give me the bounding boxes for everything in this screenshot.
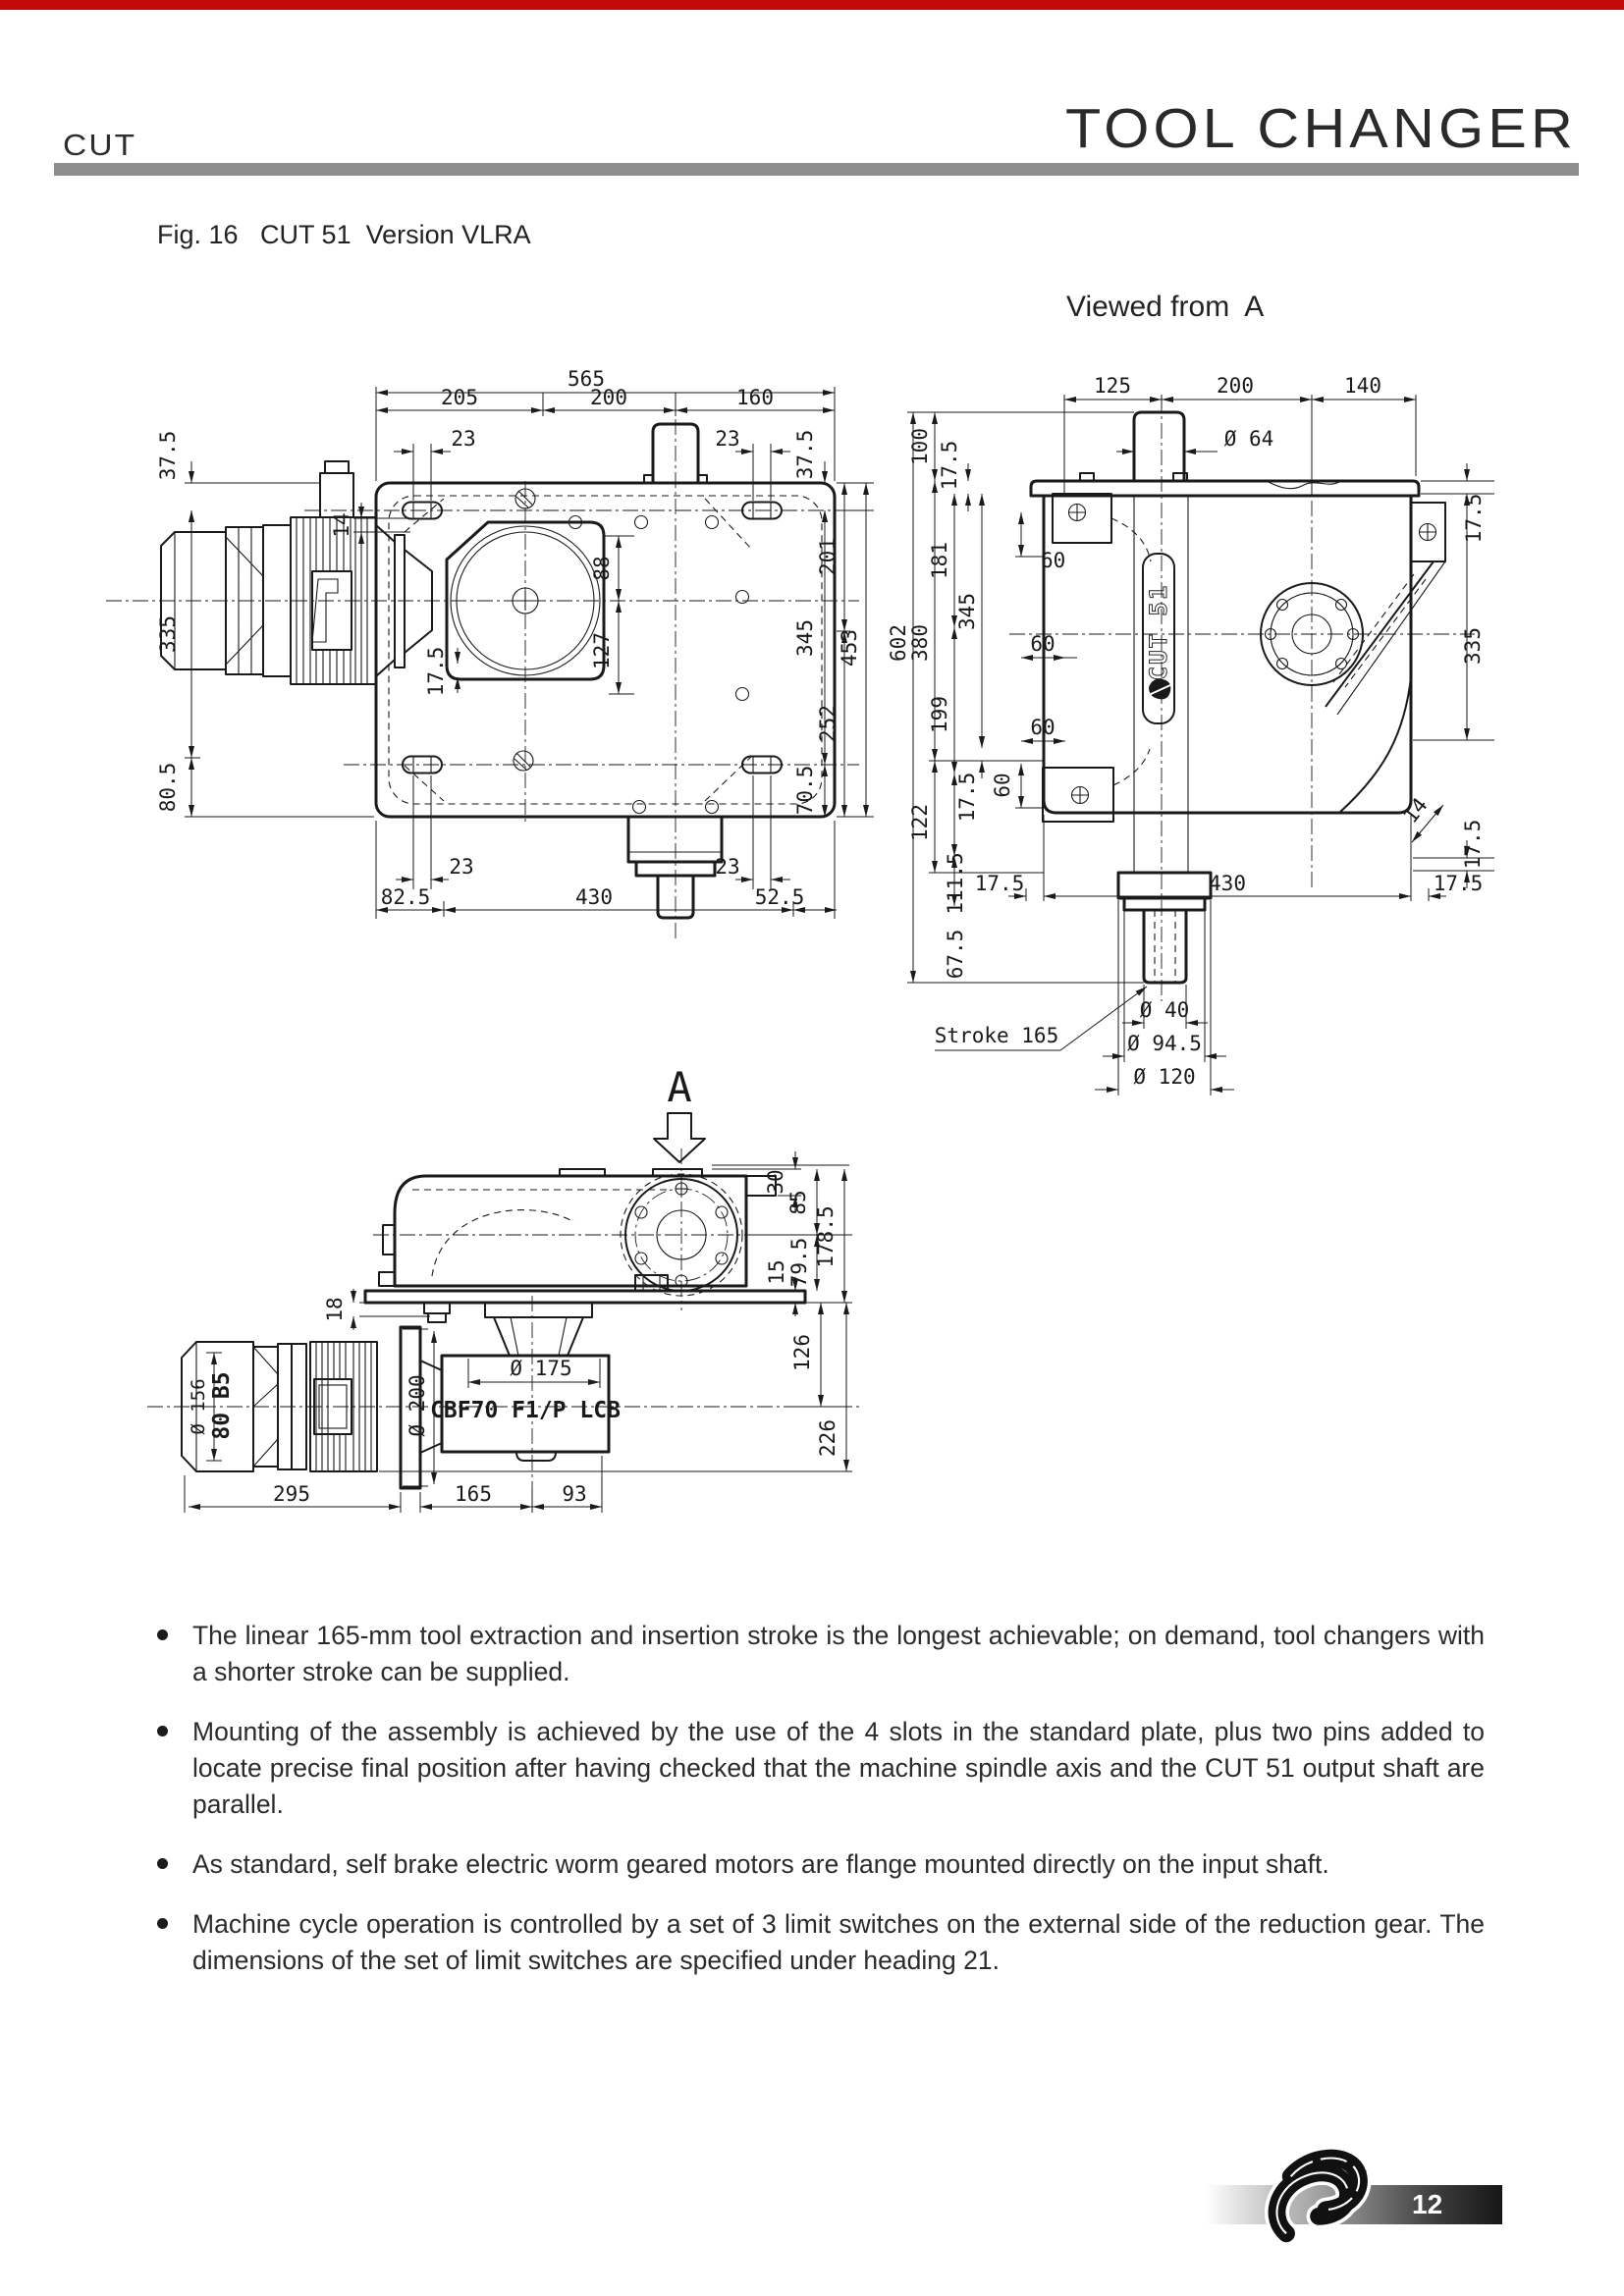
dim-label: 17.5	[1434, 872, 1484, 895]
side-view-drawing: A	[118, 1050, 943, 1600]
top-view-drawing: 565 205 200 160 23 23 37.5 335 80.5 14	[98, 353, 884, 982]
dim-label: 345	[793, 619, 817, 657]
dim-label: 430	[575, 885, 613, 909]
dim-label: 201	[816, 538, 839, 575]
bullet-text: The linear 165-mm tool extraction and in…	[192, 1618, 1485, 1690]
dim-label: 205	[441, 386, 478, 409]
dim-label: 18	[323, 1297, 347, 1321]
dim-label: 17.5	[1461, 820, 1485, 870]
dim-label: 200	[1217, 374, 1254, 398]
dim-label: 60	[1041, 549, 1065, 572]
dim-label: 165	[455, 1482, 492, 1506]
dim-label: 23	[451, 427, 475, 451]
dim-label: 93	[562, 1482, 586, 1506]
dim-label: 126	[790, 1334, 814, 1371]
dim-label: 14	[1398, 793, 1432, 828]
top-view-centerlines	[106, 393, 859, 942]
dim-label: Ø 94.5	[1127, 1032, 1202, 1055]
bullet-text: Mounting of the assembly is achieved by …	[192, 1714, 1485, 1823]
bullet-icon	[157, 1714, 192, 1823]
dim-label: Ø 156	[188, 1378, 209, 1434]
view-letter: A	[667, 1063, 691, 1111]
dim-label: 295	[273, 1482, 310, 1506]
bullet-text: Machine cycle operation is controlled by…	[192, 1906, 1485, 1979]
bullet-icon	[157, 1846, 192, 1883]
dim-label: 200	[590, 386, 627, 409]
dim-label: 60	[1030, 632, 1055, 656]
dim-label: Ø 175	[510, 1357, 571, 1380]
dim-label: 88	[590, 556, 614, 580]
dim-label: 127	[590, 632, 614, 669]
brand-knot-logo	[1265, 2146, 1378, 2256]
top-view-motor	[161, 461, 432, 684]
bullet-icon	[157, 1618, 192, 1690]
dim-label: 17.5	[975, 872, 1025, 895]
header-rule	[54, 163, 1579, 176]
dim-label: 23	[449, 855, 473, 879]
dim-label: 178.5	[814, 1205, 838, 1267]
page-number: 12	[1412, 2189, 1442, 2220]
dim-label: 23	[715, 855, 739, 879]
motor-model-label: CBF70 F1/P LCB	[430, 1398, 621, 1423]
dim-label: 602	[887, 624, 910, 662]
view-direction-marker: A	[654, 1063, 705, 1162]
dim-label: 67.5	[944, 930, 967, 980]
dim-label: 335	[1461, 627, 1485, 665]
dim-label: 37.5	[156, 431, 180, 481]
dim-label: Ø 200	[406, 1374, 429, 1436]
figure-caption: Fig. 16 CUT 51 Version VLRA	[157, 220, 531, 250]
dim-label: Ø 64	[1224, 427, 1274, 451]
document-page: CUT TOOL CHANGER Fig. 16 CUT 51 Version …	[0, 0, 1624, 2296]
dim-label: 199	[928, 696, 951, 733]
list-item: The linear 165-mm tool extraction and in…	[157, 1618, 1485, 1690]
front-view-centerlines	[1009, 397, 1475, 1001]
dim-label: 60	[1030, 716, 1055, 739]
dim-label: 14	[330, 512, 353, 537]
arrow-down-icon	[654, 1113, 705, 1162]
list-item: Mounting of the assembly is achieved by …	[157, 1714, 1485, 1823]
dim-label: 453	[838, 629, 861, 667]
motor-size-label: 80 B5	[209, 1371, 235, 1439]
dim-label: 23	[715, 427, 739, 451]
bullet-text: As standard, self brake electric worm ge…	[192, 1846, 1329, 1883]
dim-label: 252	[816, 705, 839, 742]
dim-label: 30	[764, 1169, 787, 1194]
dim-label: 160	[736, 386, 774, 409]
front-view-drawing: CUT 51 125 200 140 Ø 64 100 17.5 380 602	[884, 353, 1571, 1109]
side-view-outline	[182, 1169, 805, 1488]
dim-label: 125	[1094, 374, 1131, 398]
page-title: TOOL CHANGER	[1065, 96, 1577, 161]
dim-label: 122	[908, 804, 932, 841]
dim-label: Ø 40	[1140, 998, 1190, 1022]
stroke-note: Stroke 165	[935, 1024, 1058, 1047]
dim-label: 345	[955, 593, 979, 630]
dim-label: 70.5	[793, 766, 817, 816]
dim-label: 60	[991, 773, 1014, 797]
dim-label: 17.5	[955, 773, 979, 823]
front-view-outline: CUT 51	[1031, 412, 1445, 983]
dim-label: 17.5	[938, 441, 961, 491]
dim-label: 79.5	[787, 1238, 811, 1288]
dim-label: Ø 120	[1133, 1065, 1195, 1089]
view-from-label: Viewed from A	[1066, 291, 1264, 324]
dim-label: 17.5	[1462, 494, 1486, 544]
notes-list: The linear 165-mm tool extraction and in…	[157, 1618, 1485, 2002]
dim-label: 380	[908, 624, 932, 662]
top-accent-bar	[0, 0, 1624, 10]
dim-label: 82.5	[381, 885, 431, 909]
dim-label: 140	[1344, 374, 1381, 398]
dim-label: 15	[765, 1259, 788, 1284]
cut51-embossed-badge: CUT 51	[1145, 584, 1172, 681]
dim-label: 17.5	[424, 647, 448, 697]
dim-label: 335	[156, 615, 180, 653]
dim-label: 80.5	[156, 763, 180, 813]
dim-label: 111.5	[944, 852, 967, 914]
dim-label: 226	[816, 1419, 839, 1457]
dim-label: 85	[786, 1190, 810, 1214]
dim-label: 52.5	[755, 885, 805, 909]
list-item: As standard, self brake electric worm ge…	[157, 1846, 1485, 1883]
dim-label: 37.5	[793, 430, 817, 480]
dim-label: 430	[1209, 872, 1246, 895]
bullet-icon	[157, 1906, 192, 1979]
header-product-code: CUT	[63, 128, 136, 163]
dim-label: 100	[908, 428, 932, 465]
dim-label: 181	[928, 542, 951, 579]
list-item: Machine cycle operation is controlled by…	[157, 1906, 1485, 1979]
